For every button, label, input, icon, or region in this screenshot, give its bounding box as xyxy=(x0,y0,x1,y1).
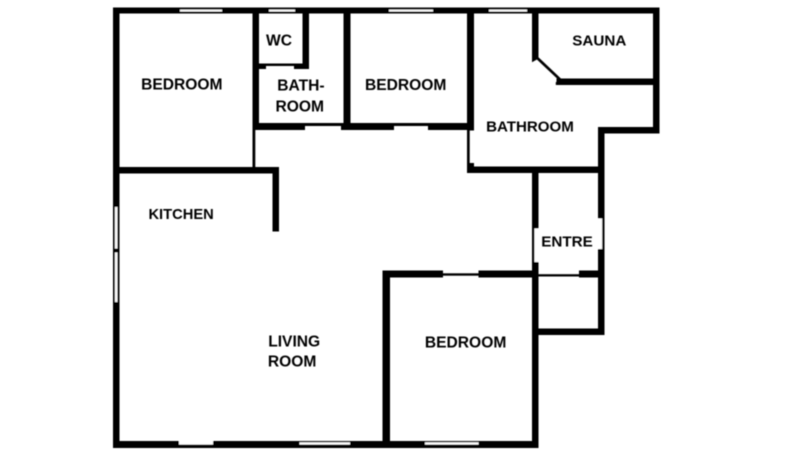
svg-text:BEDROOM: BEDROOM xyxy=(425,335,506,352)
svg-text:WC: WC xyxy=(266,33,292,50)
svg-text:SAUNA: SAUNA xyxy=(572,33,626,50)
svg-text:KITCHEN: KITCHEN xyxy=(148,207,213,223)
svg-text:BEDROOM: BEDROOM xyxy=(365,77,446,94)
svg-text:BEDROOM: BEDROOM xyxy=(141,76,222,93)
svg-text:BATHROOM: BATHROOM xyxy=(486,119,574,136)
svg-text:ROOM: ROOM xyxy=(268,353,317,370)
svg-text:ROOM: ROOM xyxy=(276,98,325,115)
svg-text:LIVING: LIVING xyxy=(268,333,320,350)
svg-text:ENTRE: ENTRE xyxy=(541,234,592,251)
svg-text:BATH-: BATH- xyxy=(277,77,324,94)
